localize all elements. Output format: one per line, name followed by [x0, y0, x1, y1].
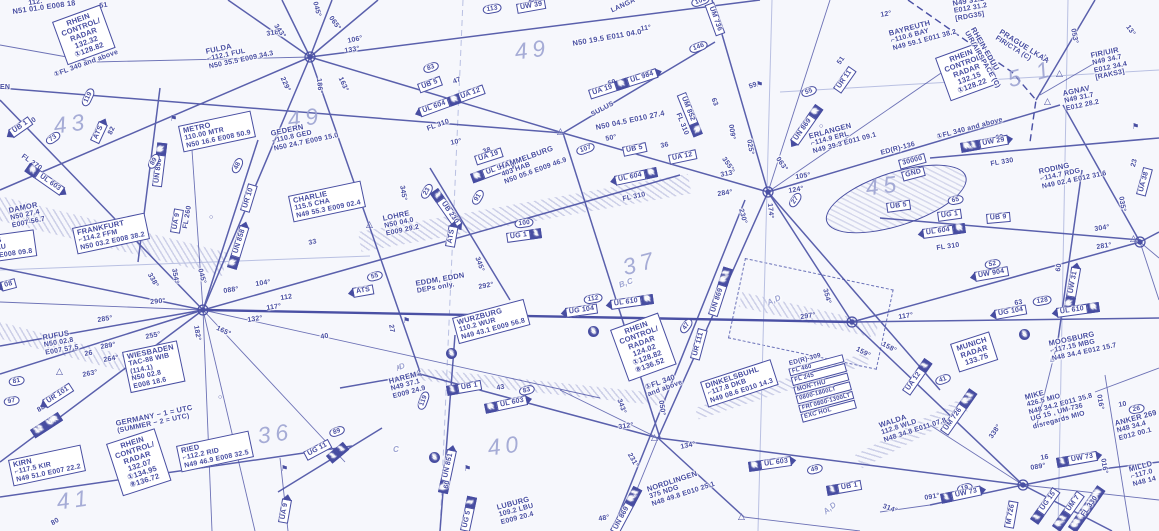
- airway-label: RUL 603: [748, 456, 792, 471]
- airway-label: UA 12: [668, 149, 697, 164]
- airway-arrow: UN 851: [441, 449, 457, 482]
- reporting-point-badge: 5: [429, 452, 440, 463]
- airway-designator-solid: R: [689, 122, 702, 137]
- airway-label: GND: [901, 166, 926, 181]
- airway-label: UL 604R: [614, 167, 658, 185]
- bearing-label: 230°: [737, 208, 748, 225]
- value-label: 40: [320, 333, 329, 342]
- erlangen-station: ERLANGEN⌐114.9 ERLN49 39.3 E011 09.1: [808, 116, 877, 155]
- dinkelsbuhl-station: DINKELSBUHL⌐117.8 DKBN49 08.6 E010 14.3: [700, 359, 779, 408]
- bearing-label: 089°: [1030, 462, 1046, 472]
- grid-number: 45: [864, 171, 903, 201]
- bearing-label: 165°: [215, 325, 232, 338]
- restricted-area-label: ED(R)-136: [880, 141, 916, 157]
- fulda-station: FULDA⌐112.1 FULN50 35.5 E009 34.3: [205, 34, 274, 70]
- value-label: 48°: [598, 514, 610, 523]
- airway-designator: UB 5: [417, 76, 443, 93]
- mileage-badge: 55: [800, 85, 818, 99]
- mileage-badge: 91: [470, 188, 486, 206]
- airway-label: UW 39: [516, 0, 547, 13]
- mileage-badge: 113: [482, 3, 502, 15]
- airway-designator-solid: R: [156, 142, 167, 155]
- fl-note-c: ①FL 340and above: [644, 372, 684, 399]
- coords-partial: N51 01.0 E008 18: [12, 0, 76, 16]
- value-label: FL 310: [936, 242, 960, 253]
- airway-designator: UN 869: [708, 284, 727, 317]
- airway-designator: UA 9: [170, 209, 183, 234]
- value-label: 112: [280, 293, 293, 302]
- airway-designator-solid: R: [641, 294, 654, 305]
- bearing-label: 186°: [314, 78, 323, 94]
- station-label-line: N50 04.5 E010 27.4: [595, 109, 665, 132]
- bearing-label: 285°: [97, 315, 113, 325]
- airway-label: 1UB 1: [446, 380, 482, 395]
- airway-arrow: UL 603: [496, 395, 528, 411]
- airway-arrow: UR 101: [42, 383, 74, 408]
- airway-label: UA 9: [170, 209, 183, 234]
- taunus-station-partial: USTAU5 E008 09.8: [0, 229, 37, 263]
- sulus-coords: N50 04.5 E010 27.4: [595, 109, 665, 132]
- airway-label: UR 101: [42, 383, 74, 408]
- value-label: LANGA: [610, 0, 637, 15]
- airway-arrow: UL 604: [922, 225, 954, 239]
- charlie-station: CHARLIE115.5 CHAN49 55.3 E009 02.4: [288, 181, 366, 223]
- airway-arrow: UL 604: [614, 170, 646, 186]
- airway-label: UG 104: [994, 304, 1027, 319]
- airway-arrow: ATS: [352, 284, 374, 297]
- airway-designator: UG 1: [506, 230, 531, 243]
- mileage-badge: 100: [514, 217, 535, 229]
- mileage-badge: 81: [8, 375, 25, 387]
- bearing-label: 174°: [765, 203, 774, 219]
- rhein-control-box-c: RHEINCONTROL/RADAR124.02①128.82⑧136.52: [610, 313, 676, 382]
- airway-label: RUL 603: [484, 395, 528, 413]
- airway-label: UN 869R,1: [610, 485, 642, 531]
- bearing-label: 345°: [473, 256, 485, 273]
- airway-label: UB 5: [417, 76, 443, 93]
- mileage-badge: 83: [422, 61, 440, 75]
- airway-arrow: UB 1: [8, 116, 33, 137]
- airway-label: RUN 858: [227, 225, 249, 270]
- bearing-label: 025°: [745, 139, 755, 155]
- airway-label: 1UW 73: [1056, 451, 1098, 467]
- nordlingen-station: NORDLINGEN375 NDGN48 49.8 E010 25.1: [646, 466, 716, 508]
- moosburg-station: MOOSBURG⌐117.15 MBGN48 34.4 E012 15.7: [1048, 326, 1117, 362]
- airway-label: RUW 31: [1064, 267, 1081, 310]
- airway-designator-solid: UR: [43, 412, 63, 430]
- value-label: 12°: [880, 10, 892, 19]
- airway-label: UM 726R,1: [940, 388, 977, 435]
- bearing-label: 091°: [924, 492, 940, 502]
- reporting-point-badge: 5: [1019, 329, 1030, 340]
- deps-note: EDDM, EDDNDEPs only.: [415, 271, 466, 295]
- chart-labels-layer: 112.N51 01.0 E008 1851RHEINCONTROL/RADAR…: [0, 0, 1159, 531]
- airway-designator: UG 5: [460, 506, 474, 531]
- value-label: 23: [1130, 158, 1139, 168]
- rhein-control-box-sw: RHEINCONTROL/RADAR132.07①134.95⑧136.72: [106, 428, 171, 496]
- value-label: SULUS: [590, 100, 615, 118]
- bearing-label: 354°: [170, 268, 180, 284]
- area-letter: D: [398, 362, 407, 372]
- airway-label: UL 604R: [922, 223, 966, 238]
- value-label: 51: [836, 55, 847, 66]
- airway-label: UL 604R: [418, 93, 462, 117]
- metro-station: METRO110.00 MTRN50 16.6 E008 50.9: [178, 111, 256, 153]
- bearing-label: 088°: [223, 286, 239, 296]
- airway-label: UG 104: [565, 304, 598, 318]
- value-label: 63: [709, 97, 719, 107]
- airway-designator-solid: R,1: [959, 388, 977, 409]
- airway-designator: UA 19: [588, 81, 617, 99]
- bearing-label: 343°: [272, 23, 287, 40]
- airway-designator-solid: 1: [465, 496, 477, 509]
- enroute-chart: △△△△△△△△△△△⚑⚑⚑⚑⚑⚑⚑○○○○ 112.N51 01.0 E008…: [0, 0, 1159, 531]
- airway-arrow: UW 31: [1066, 267, 1081, 298]
- bearing-label: 284°: [717, 189, 733, 199]
- airway-label: UL 610R: [1056, 302, 1100, 317]
- airway-designator: UG 1: [937, 209, 962, 222]
- airway-designator-solid: R: [1087, 302, 1100, 313]
- airway-label: UG 1: [937, 209, 962, 222]
- value-label: 36: [660, 141, 670, 150]
- mileage-badge: 128: [1032, 295, 1053, 307]
- wurzburg-station: WURZBURG110.2 WURN49 43.1 E009 56.8: [452, 299, 530, 344]
- walda-station: WALDA112.8 WLDN48 34.8 E011 07.8: [878, 402, 947, 444]
- value-label: 50°: [605, 134, 618, 144]
- value-label: 26: [84, 350, 93, 359]
- bearing-label: 063°: [774, 156, 789, 173]
- bearing-label: 264°: [103, 354, 119, 364]
- airway-label: 12UR: [30, 412, 63, 438]
- airway-label: UR 111: [690, 328, 707, 361]
- airway-arrow: UA 9: [278, 499, 291, 524]
- airway-designator: UM 736: [705, 2, 725, 36]
- roding-station: RODING⌐114.7 RDGN49 02.4 E012 31.6: [1038, 154, 1107, 190]
- bearing-label: 314°: [881, 503, 898, 515]
- bearing-label: 104°: [255, 279, 271, 289]
- bearing-label: 312°: [618, 422, 634, 432]
- airway-label: 1UB 1: [826, 480, 862, 495]
- airway-label: UL 610R: [610, 294, 654, 309]
- airway-designator-solid: 1: [530, 228, 542, 239]
- bearing-label: 345°: [398, 185, 408, 201]
- airway-label: UA 19RUL 984: [588, 68, 658, 99]
- airway-designator: UB 9: [986, 212, 1010, 224]
- mileage-badge: 97: [3, 395, 20, 407]
- airway-arrow: UL 604: [418, 97, 450, 117]
- bearing-label: 045°: [196, 268, 207, 285]
- airway-arrow: UW 904: [974, 266, 1009, 281]
- bearing-label: 281°: [1096, 242, 1112, 252]
- station-label-line: N50 19.5 E011 04.0: [572, 28, 642, 48]
- grid-number: 5 1: [1005, 56, 1057, 92]
- fir-uir-point: FIR/UIRN49 34.7E012 34.4[RAKS3]: [1090, 45, 1129, 82]
- bearing-label: 016°: [1099, 458, 1109, 474]
- airway-label: UA 121: [902, 358, 932, 395]
- bearing-label: 158°: [880, 341, 897, 355]
- airway-label: UB 9: [986, 212, 1010, 224]
- bearing-label: 035°: [1117, 196, 1127, 212]
- airway-label: UB 5: [622, 142, 647, 156]
- bearing-label: 297°: [800, 312, 816, 322]
- value-label: 10°: [450, 138, 463, 148]
- airway-designator: UR 11: [833, 65, 857, 93]
- airway-label: UB 5: [886, 200, 911, 213]
- airway-designator: UA 38: [1136, 167, 1152, 196]
- airway-arrow: ATS: [90, 121, 108, 144]
- airway-arrow: UW 29: [978, 135, 1009, 150]
- airway-label: UN 869R,1: [708, 266, 733, 317]
- value-label: 60: [443, 480, 452, 490]
- mileage-badge: 49: [806, 463, 823, 476]
- area-letter: A,D: [766, 294, 783, 308]
- airway-arrow: UL 984: [626, 68, 658, 87]
- value-label: 10: [1118, 401, 1127, 410]
- airway-arrow: UW 73: [951, 486, 982, 501]
- grid-number: 41: [55, 485, 94, 515]
- airway-arrow: UL 603: [35, 170, 66, 196]
- bearing-label: 182°: [192, 325, 202, 341]
- reporting-point-badge: 5: [446, 348, 457, 359]
- airway-arrow: UN 858: [231, 225, 249, 258]
- value-label: 82: [107, 126, 117, 137]
- airway-label: UM 736: [705, 2, 725, 36]
- mileage-badge: 65: [947, 194, 964, 206]
- bearing-label: 009°: [727, 124, 737, 140]
- station-label-line: N51 01.0 E008 18: [12, 0, 76, 16]
- airway-designator: GND: [901, 166, 926, 181]
- mileage-badge: 146: [688, 39, 709, 54]
- grid-number: 49: [513, 35, 552, 65]
- value-label: 47: [452, 76, 462, 86]
- bearing-label: 159°: [854, 346, 871, 360]
- value-label: 16: [1040, 454, 1049, 463]
- bearing-label: 065°: [327, 15, 342, 32]
- agnav-fix: AGNAVN49 31.7E012 28.2: [1062, 83, 1100, 113]
- area-letter: C: [393, 446, 399, 455]
- value-label: FL 330: [990, 157, 1014, 168]
- bearing-label: 133°: [344, 45, 360, 55]
- bearing-label: 290°: [150, 298, 166, 307]
- reporting-point-badge: 5: [588, 326, 599, 337]
- bearing-label: 132°: [247, 315, 263, 325]
- value-label: FL 260: [182, 205, 193, 229]
- mileage-badge: 89: [328, 425, 346, 439]
- bearing-label: 229°: [278, 76, 291, 93]
- bearing-label: 263°: [82, 369, 99, 380]
- bearing-label: 292°: [478, 281, 494, 291]
- airway-designator: UA 12: [902, 367, 926, 395]
- mileage-badge: 41: [934, 373, 952, 387]
- airway-designator: UB 5: [622, 142, 647, 156]
- restricted-area-box: ED(R)-309FL 460FL 245MON-THU0800-1800LTF…: [786, 346, 857, 423]
- bearing-label: 117°: [266, 303, 282, 313]
- airway-label: UB 1: [8, 116, 33, 137]
- mileage-badge: 119: [80, 87, 96, 108]
- value-label: EN: [0, 84, 10, 92]
- bearing-label: 050°: [657, 400, 667, 416]
- bearing-label: 045°: [311, 1, 322, 18]
- bearing-label: 313°: [720, 169, 737, 180]
- value-label: 11°: [640, 24, 652, 33]
- bearing-label: 106°: [347, 35, 364, 46]
- airway-label: UR 11: [833, 65, 857, 93]
- airway-label: 08: [0, 278, 17, 291]
- frankfurt-station: FRANKFURT⌐114.2 FFMN50 03.2 E008 38.2: [72, 213, 150, 255]
- airway-arrow: UG 104: [994, 304, 1027, 319]
- grid-number: 40: [486, 431, 525, 461]
- airway-designator: UW 39: [516, 0, 547, 13]
- bearing-label: 163°: [336, 76, 349, 93]
- munich-radar-box: MUNICHRADAR133.75: [950, 331, 999, 373]
- airway-arrow: UL 610: [610, 296, 642, 310]
- mileage-badge: 48: [230, 157, 245, 175]
- bearing-label: 338°: [145, 272, 159, 289]
- airway-designator: UB 5: [886, 200, 911, 213]
- gedern-station: GEDERN⌐110.8 GEDN50 24.7 E009 15.0: [270, 116, 339, 152]
- airway-designator: UB 1: [457, 380, 482, 394]
- airway-label: UG 51: [460, 496, 477, 531]
- bearing-label: 338°: [988, 423, 1003, 440]
- bearing-label: 117°: [898, 312, 914, 322]
- airway-designator-solid: R: [644, 167, 658, 179]
- airway-designator: M 726: [1004, 500, 1018, 529]
- anker-station: ANKER 269N48 34.4E012 00.1: [1114, 409, 1159, 443]
- airway-label: R,1UW 29: [960, 135, 1009, 153]
- value-label: 33: [308, 238, 318, 247]
- value-label: 60: [1055, 263, 1064, 272]
- airway-designator-solid: R,1: [960, 140, 980, 153]
- value-label: 43: [496, 384, 505, 393]
- mileage-badge: 47: [678, 317, 694, 335]
- airway-designator: UR 111: [690, 328, 707, 361]
- area-letter: A,D: [822, 501, 839, 517]
- airway-label: UA 38: [1136, 167, 1152, 196]
- value-label: 27: [387, 324, 396, 333]
- rufus-fix: RUFUSN50 02.8E007 57.5: [42, 328, 79, 357]
- airway-arrow: UL 603: [760, 456, 792, 470]
- kirn-station: KIRN⌐117.5 KIRN49 51.0 E007 22.2: [8, 445, 86, 487]
- bearing-label: 231°: [625, 452, 639, 469]
- airway-label: ATS: [90, 121, 108, 144]
- mileage-badge: 107: [575, 141, 596, 156]
- bearing-label: 255°: [145, 331, 162, 342]
- bearing-label: 105°: [795, 172, 811, 182]
- luburg-station: LUBURG109.2 LBUE009 20.4: [496, 495, 536, 527]
- airway-label: UA 9: [278, 499, 291, 524]
- value-label: 80: [50, 517, 61, 528]
- airway-arrow: UG 104: [565, 304, 598, 318]
- rdg35-point: N49 31.2E012 31.2[RDG35]: [952, 0, 989, 23]
- airway-arrow: UW 73: [1067, 451, 1098, 466]
- grid-number: 36: [256, 419, 295, 449]
- hammelburg-station: HAMMELBURG403 HABN50 05.6 E009 46.9: [498, 141, 568, 185]
- bearing-label: 304°: [1094, 224, 1110, 234]
- bearing-label: 343°: [615, 398, 627, 415]
- value-label: 59: [748, 81, 758, 91]
- airway-label: M 726: [1004, 500, 1018, 529]
- milldorf-partial: MILLD⌐117.0N48 14: [1128, 460, 1157, 489]
- lohre-fix: LOHREN50 04.0E009 29.2: [382, 208, 420, 238]
- airway-arrow: UL 610: [1056, 304, 1088, 318]
- airway-designator-solid: R,1: [718, 266, 733, 287]
- ried-station: RIED⌐112.2 RIDN49 46.9 E008 32.5: [176, 431, 254, 473]
- langa-coords: N50 19.5 E011 04.0: [572, 28, 642, 48]
- wiesbaden-station: WIESBADENTAC-88 WIB(114.1)N50 02.8E008 1…: [122, 340, 185, 393]
- airway-designator: UN 869: [610, 502, 633, 531]
- airway-label: UR 10: [240, 183, 257, 212]
- bearing-label: 354°: [821, 288, 832, 305]
- airway-designator-solid: R: [953, 223, 966, 234]
- value-label: FL 310: [622, 191, 646, 203]
- mike-station: MIKE426.5 MION48 34.2 E011 35.8UG 15 , U…: [1024, 377, 1097, 431]
- airway-label: UG 11: [506, 228, 542, 242]
- value-label: 13°: [1124, 24, 1137, 37]
- bearing-label: 053°: [1069, 28, 1080, 45]
- bearing-label: 289°: [100, 341, 116, 351]
- airway-label: RUL 603: [25, 163, 66, 196]
- mileage-badge: 55: [366, 270, 383, 283]
- airway-label: UW 904: [974, 266, 1009, 281]
- airway-designator: UA 12: [668, 149, 697, 164]
- airway-arrow: 08: [0, 278, 17, 291]
- value-label: FL 310: [426, 118, 450, 133]
- airway-designator: UB 1: [837, 480, 862, 494]
- airway-label: ATS: [445, 225, 458, 247]
- bayreuth-station: BAYREUTH⌐110.6 BAYN49 59.1 E011 38.2: [888, 13, 957, 52]
- airway-designator-solid: R,1: [625, 485, 642, 506]
- airway-label: ATS: [352, 284, 374, 297]
- airway-designator: UG 15: [1036, 487, 1060, 516]
- airway-designator: UR 10: [240, 183, 257, 212]
- airway-arrow: ATS: [445, 225, 458, 247]
- bearing-label: 016°: [1095, 394, 1105, 410]
- damor-fix: DAMORN50 27.4E007 56.7: [8, 200, 46, 230]
- bearing-label: 134°: [680, 441, 697, 452]
- grid-number: 37: [620, 247, 661, 280]
